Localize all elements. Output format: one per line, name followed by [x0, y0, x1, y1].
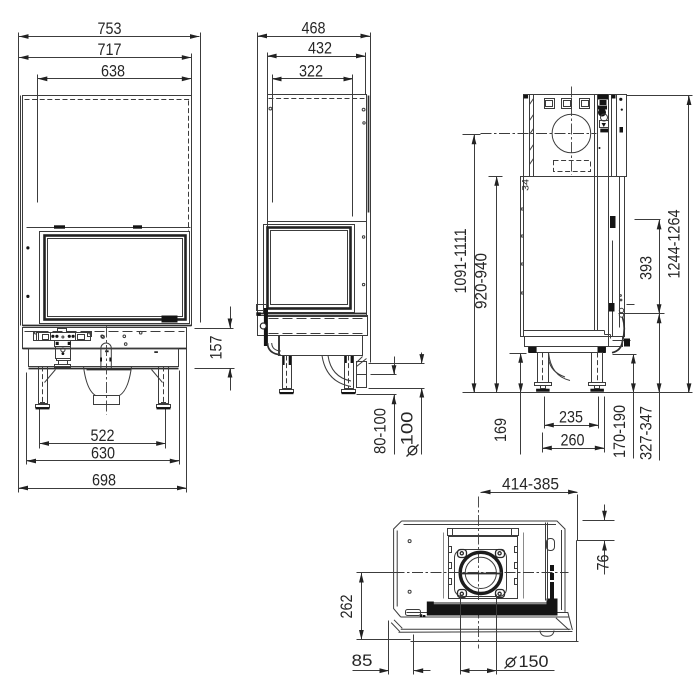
svg-text:393: 393 — [638, 256, 656, 280]
svg-text:1091-1111: 1091-1111 — [452, 229, 470, 294]
svg-text:85: 85 — [352, 652, 373, 670]
svg-text:100: 100 — [399, 412, 417, 446]
svg-text:522: 522 — [91, 427, 115, 445]
svg-text:170-190: 170-190 — [611, 405, 629, 458]
svg-text:638: 638 — [101, 62, 125, 80]
svg-text:80-100: 80-100 — [372, 408, 390, 454]
svg-text:260: 260 — [561, 432, 585, 450]
svg-text:717: 717 — [98, 41, 122, 59]
svg-text:235: 235 — [559, 409, 583, 427]
svg-text:753: 753 — [98, 20, 122, 38]
svg-text:262: 262 — [338, 595, 356, 619]
svg-text:34: 34 — [521, 179, 531, 191]
svg-text:630: 630 — [91, 445, 115, 463]
svg-text:76: 76 — [595, 555, 613, 571]
svg-text:327-347: 327-347 — [638, 406, 656, 460]
svg-text:414-385: 414-385 — [502, 476, 559, 494]
svg-text:698: 698 — [92, 472, 116, 490]
svg-text:1244-1264: 1244-1264 — [666, 210, 684, 279]
svg-text:468: 468 — [302, 20, 326, 38]
svg-text:322: 322 — [299, 63, 323, 81]
svg-text:169: 169 — [492, 418, 510, 442]
svg-text:920-940: 920-940 — [473, 253, 491, 309]
svg-text:432: 432 — [308, 40, 332, 58]
svg-text:150: 150 — [519, 653, 549, 671]
svg-text:157: 157 — [208, 336, 226, 360]
